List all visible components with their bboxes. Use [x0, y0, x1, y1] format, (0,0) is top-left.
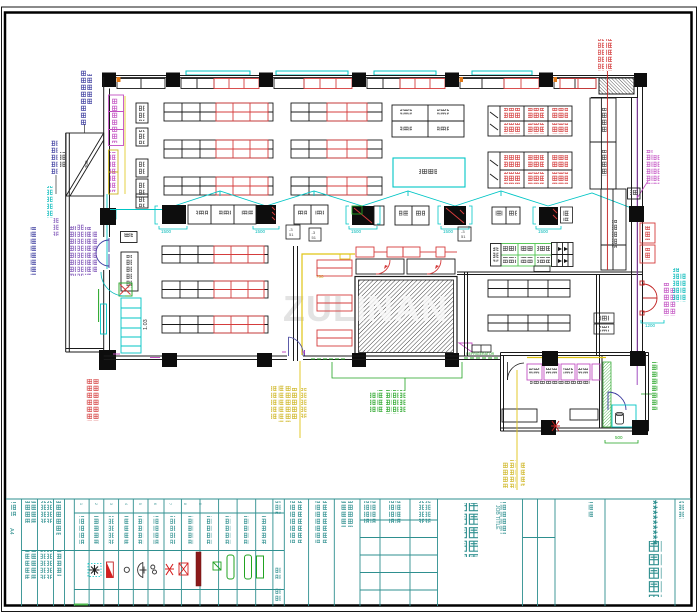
- svg-text:1500: 1500: [351, 229, 362, 234]
- svg-text:1: 1: [79, 503, 83, 505]
- svg-text:1500: 1500: [443, 229, 454, 234]
- svg-text:JOB TITLE: JOB TITLE: [494, 505, 500, 530]
- svg-text:REFRIGERATOR: REFRIGERATOR: [466, 352, 495, 356]
- svg-text:9: 9: [198, 503, 202, 505]
- svg-text:2: 2: [94, 503, 98, 505]
- svg-text:51: 51: [461, 234, 466, 239]
- svg-text:1500: 1500: [538, 229, 549, 234]
- svg-text:500: 500: [615, 435, 623, 440]
- svg-text:1.03: 1.03: [143, 319, 149, 330]
- svg-text:1500: 1500: [255, 229, 266, 234]
- svg-text:1500: 1500: [161, 229, 172, 234]
- svg-text:*********: *********: [646, 500, 660, 545]
- svg-text:8: 8: [183, 503, 187, 505]
- svg-text:6: 6: [153, 503, 157, 505]
- svg-text:A4: A4: [8, 528, 14, 535]
- svg-text:51: 51: [312, 235, 317, 240]
- svg-text:7: 7: [168, 503, 172, 505]
- svg-text:5: 5: [138, 503, 142, 505]
- svg-text:300: 300: [84, 160, 89, 168]
- svg-text:4: 4: [124, 503, 128, 505]
- svg-text:51: 51: [289, 232, 294, 237]
- svg-text:3: 3: [109, 503, 113, 505]
- svg-text:1200: 1200: [645, 323, 656, 328]
